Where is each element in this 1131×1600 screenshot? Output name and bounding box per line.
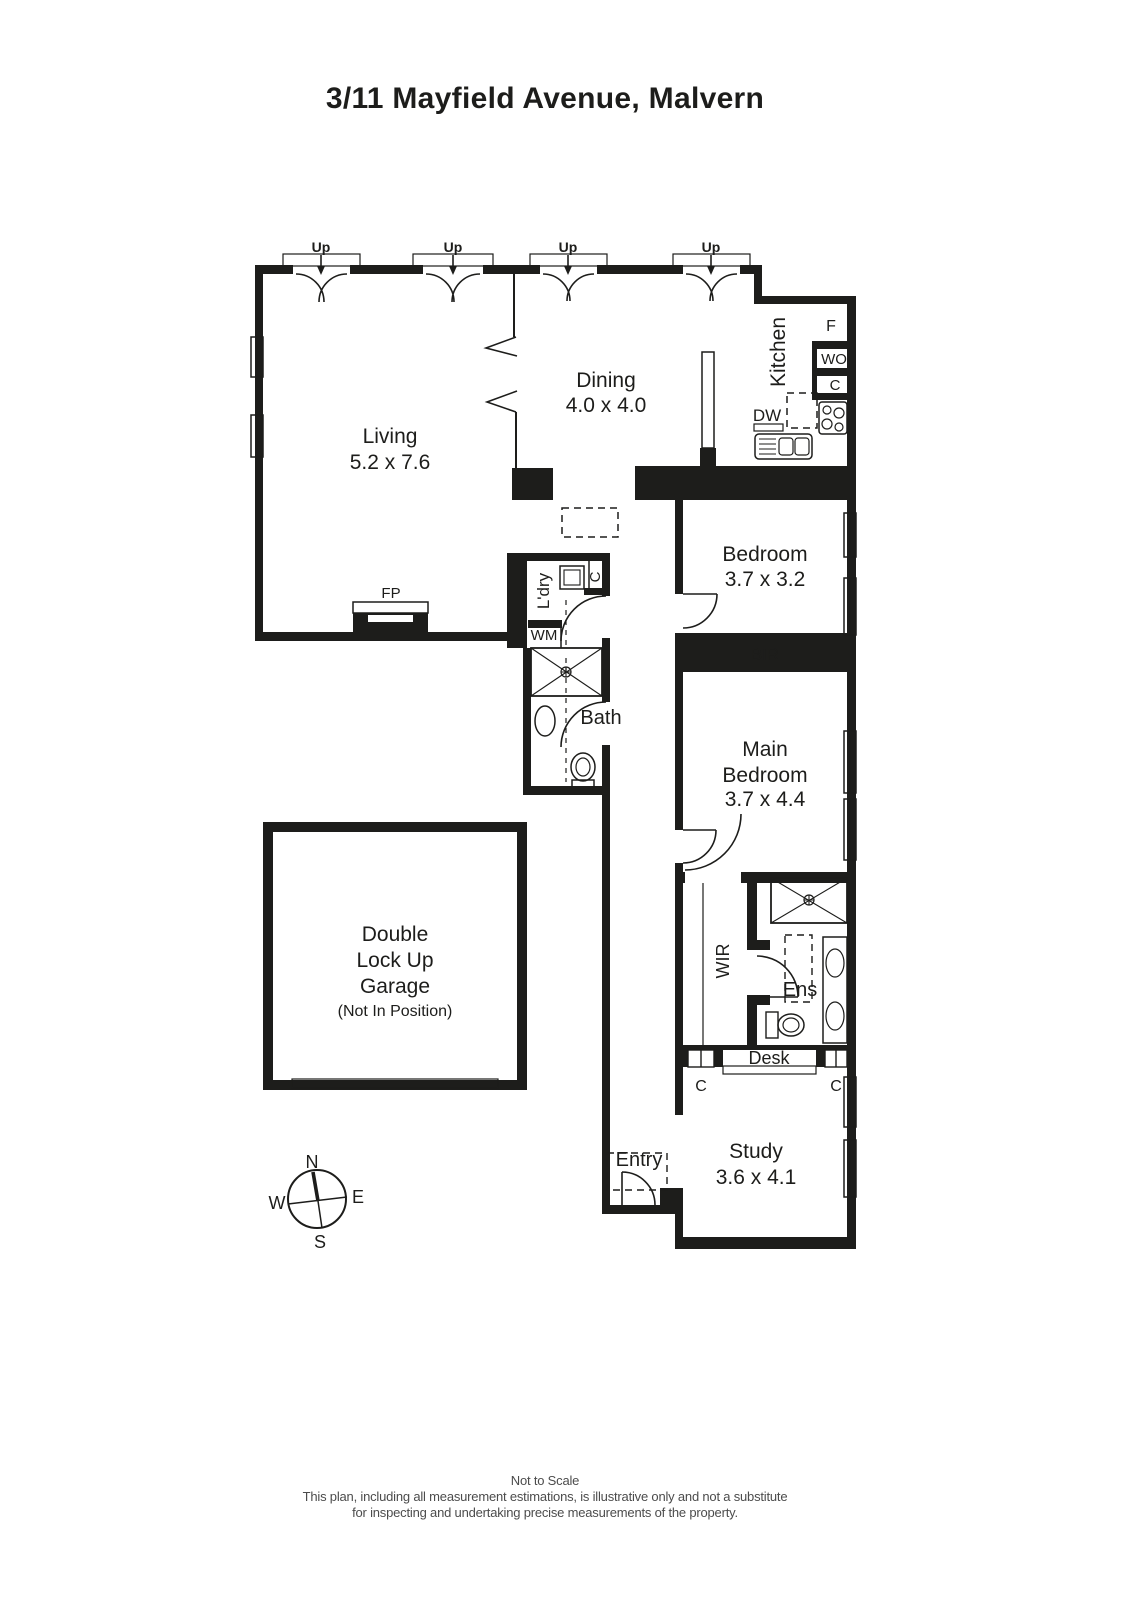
fireplace-label: FP — [381, 585, 400, 602]
main-bedroom-dims: 3.7 x 4.4 — [725, 788, 806, 811]
laundry-door — [561, 596, 606, 641]
wall-break-symbol-1 — [486, 337, 517, 356]
entry-door — [622, 1172, 655, 1205]
up-label-4: Up — [702, 239, 721, 255]
cupboard-label-right: C — [830, 1078, 842, 1095]
dining-dims: 4.0 x 4.0 — [566, 394, 647, 417]
floor-plan-svg: 3/11 Mayfield Avenue, Malvern Up Up Up U… — [0, 0, 1131, 1600]
garage-label-3: Garage — [360, 975, 430, 998]
ensuite-shower — [771, 878, 847, 923]
desk-label: Desk — [748, 1048, 790, 1068]
kitchen-sink — [755, 434, 812, 459]
compass-north: N — [306, 1152, 319, 1172]
bedroom-dims: 3.7 x 3.2 — [725, 568, 806, 591]
wir-label: WIR — [713, 944, 733, 979]
compass-south: S — [314, 1232, 326, 1252]
ensuite-label: Ens — [783, 979, 817, 1001]
compass-east: E — [352, 1187, 364, 1207]
footer-line-3: for inspecting and undertaking precise m… — [352, 1505, 738, 1520]
main-bedroom-door — [683, 830, 716, 863]
kitchen-bench-panel — [702, 352, 714, 448]
cupboard-label-left: C — [695, 1078, 707, 1095]
ensuite-toilet — [766, 1012, 804, 1038]
compass — [288, 1170, 347, 1228]
study-label: Study — [729, 1140, 783, 1163]
up-door-3 — [530, 254, 607, 301]
bir-label: BIR — [751, 645, 779, 664]
cooktop — [819, 402, 847, 434]
footer-line-1: Not to Scale — [511, 1473, 579, 1488]
bath-toilet — [571, 753, 595, 789]
up-door-4 — [673, 254, 750, 301]
up-label-3: Up — [559, 239, 578, 255]
page-title: 3/11 Mayfield Avenue, Malvern — [326, 82, 764, 115]
hall-dashed-box — [562, 508, 618, 537]
cupboard-label-laundry: C — [587, 571, 604, 582]
fireplace-insert — [368, 615, 413, 622]
up-door-1 — [283, 254, 360, 302]
living-label: Living — [363, 425, 418, 448]
dining-label: Dining — [576, 369, 636, 392]
compass-west: W — [269, 1193, 286, 1213]
laundry-label: L'dry — [534, 572, 553, 609]
wall-oven-label: WO — [821, 351, 847, 368]
floor-plan-page: 3/11 Mayfield Avenue, Malvern Up Up Up U… — [0, 0, 1131, 1600]
bedroom-door — [683, 594, 717, 628]
kitchen-label: Kitchen — [767, 317, 790, 387]
up-label-2: Up — [444, 239, 463, 255]
bedroom-label: Bedroom — [722, 543, 807, 566]
garage-label-2: Lock Up — [356, 949, 433, 972]
dishwasher-label: DW — [753, 406, 781, 425]
fridge-label: F — [826, 318, 836, 335]
cupboard-label-kitchen: C — [830, 377, 841, 394]
footer-line-2: This plan, including all measurement est… — [303, 1489, 788, 1504]
up-door-2 — [413, 254, 493, 302]
desk-cupboard-right — [825, 1050, 847, 1067]
entry-label: Entry — [616, 1149, 663, 1171]
fireplace-hearth — [353, 602, 428, 613]
study-dims: 3.6 x 4.1 — [716, 1166, 797, 1189]
up-label-1: Up — [312, 239, 331, 255]
garage-label-1: Double — [362, 923, 429, 946]
main-bedroom-label-1: Main — [742, 738, 788, 761]
laundry-trough — [560, 566, 584, 589]
bath-basin — [535, 706, 555, 736]
garage-note: (Not In Position) — [338, 1003, 453, 1020]
bath-label: Bath — [580, 707, 621, 729]
living-dims: 5.2 x 7.6 — [350, 451, 431, 474]
main-bedroom-label-2: Bedroom — [722, 764, 807, 787]
desk-cupboard-left — [688, 1050, 714, 1067]
washing-machine-label: WM — [531, 627, 558, 644]
wall-break-symbol-2 — [487, 391, 517, 412]
dishwasher-bench — [754, 424, 783, 431]
ensuite-vanity — [823, 937, 847, 1043]
